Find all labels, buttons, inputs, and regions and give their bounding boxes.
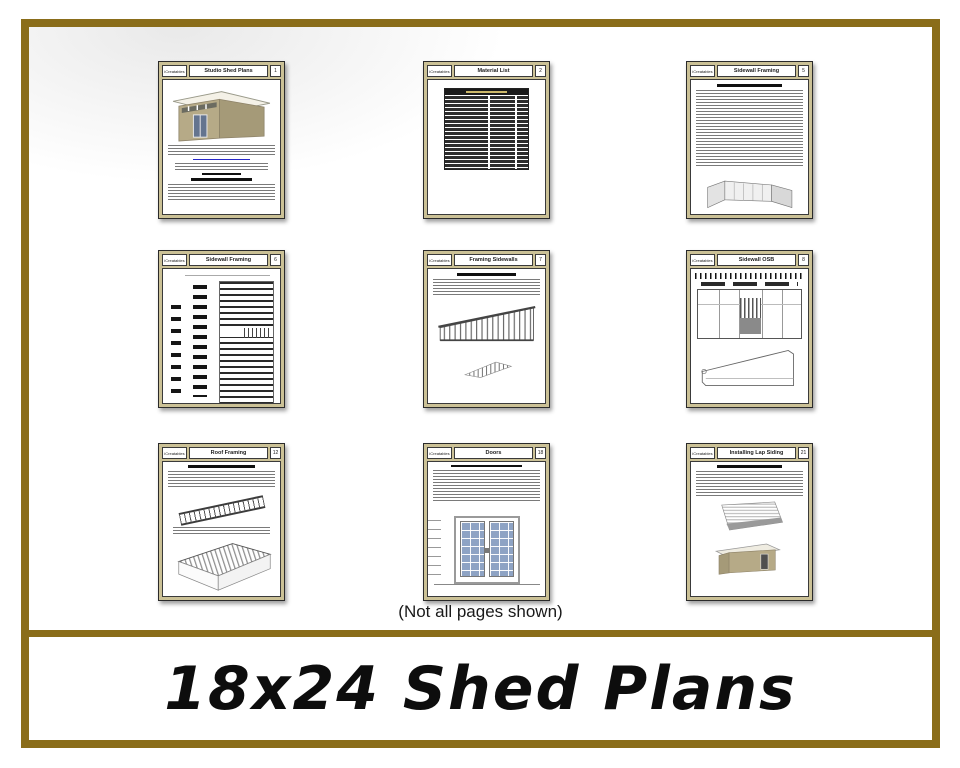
page-header: iCreatables Studio Shed Plans 1 [162,65,281,77]
page-number: 1 [270,65,281,77]
materials-table [444,88,529,170]
page-thumb-framing-diagrams: iCreatables Sidewall Framing 6 [158,250,285,408]
title-band: 18x24 Shed Plans [29,637,932,740]
page-title: Roof Framing [189,447,268,459]
heading-line [457,273,516,276]
heading-line [451,465,521,467]
dashed-blocking-row [701,282,798,286]
text-placeholder [168,145,275,157]
brand-logo: iCreatables [427,65,452,77]
text-placeholder [433,279,540,297]
stud-layout-column [193,285,207,397]
link-line [193,159,249,160]
stud-layout-column [171,305,181,397]
page-number: 2 [535,65,546,77]
side-elevation-outline [697,343,802,393]
panel-divider [782,290,783,338]
page-thumb-wall-framing-text: iCreatables Sidewall Framing 5 [686,61,813,219]
page-title: Sidewall Framing [717,65,796,77]
brand-logo: iCreatables [427,447,452,459]
text-placeholder [696,471,803,497]
door-leaf-right [489,521,514,577]
page-header: iCreatables Doors 18 [427,447,546,459]
page-thumb-cover: iCreatables Studio Shed Plans 1 [158,61,285,219]
door-leaf-left [460,521,485,577]
page-body [690,268,809,404]
page-number: 5 [798,65,809,77]
shed-3d-illustration [163,80,280,142]
page-body [427,268,546,404]
page-thumb-roof-framing: iCreatables Roof Framing 12 [158,443,285,601]
page-header: iCreatables Sidewall Framing 5 [690,65,809,77]
heading-line [188,465,256,468]
page-number: 21 [798,447,809,459]
diagram-stripes [244,328,272,338]
page-header: iCreatables Sidewall Framing 6 [162,254,281,266]
rafter-tick-row [695,273,804,279]
door-handle [484,548,490,553]
pages-grid: iCreatables Studio Shed Plans 1 [29,27,932,630]
text-placeholder [175,163,268,170]
page-body [162,268,281,404]
page-number: 8 [798,254,809,266]
table-header-text-line [466,91,508,93]
brand-logo: iCreatables [162,447,187,459]
page-body [427,461,546,597]
page-title: Doors [454,447,533,459]
page-header: iCreatables Material List 2 [427,65,546,77]
brand-logo: iCreatables [427,254,452,266]
heading-line [202,173,242,175]
page-header: iCreatables Installing Lap Siding 21 [690,447,809,459]
wall-panel-elevation [697,289,802,339]
page-title: Material List [454,65,533,77]
brand-logo: iCreatables [690,254,715,266]
wall-framing-3d [703,172,797,212]
text-placeholder [696,90,803,168]
page-header: iCreatables Roof Framing 12 [162,447,281,459]
dimension-line [185,275,270,276]
text-placeholder [168,471,275,489]
text-placeholder [168,184,275,200]
shed-3d-small [706,535,793,579]
outer-gold-frame: iCreatables Studio Shed Plans 1 [21,19,940,748]
page-thumb-sidewall-osb: iCreatables Sidewall OSB 8 [686,250,813,408]
page-body [162,79,281,215]
page-thumb-framing-sidewalls: iCreatables Framing Sidewalls 7 [423,250,550,408]
window-louver [740,298,761,318]
threshold-line [434,584,540,585]
brand-logo: iCreatables [162,65,187,77]
page-body [690,79,809,215]
page-thumb-doors: iCreatables Doors 18 [423,443,550,601]
page-number: 12 [270,447,281,459]
page-number: 6 [270,254,281,266]
text-placeholder [433,470,540,502]
beam-ladder-illustration [179,495,266,526]
door-opening [740,318,761,334]
text-placeholder [173,527,270,535]
table-column-divider [515,96,517,169]
brand-logo: iCreatables [162,254,187,266]
brand-logo: iCreatables [690,65,715,77]
page-header: iCreatables Sidewall OSB 8 [690,254,809,266]
heading-line [717,465,783,468]
gold-divider [29,630,932,637]
panel-divider [719,290,720,338]
page-body [162,461,281,597]
page-number: 18 [535,447,546,459]
page-body [427,79,546,215]
roof-framing-3d [168,537,276,595]
table-rows [445,96,528,169]
page-title: Sidewall Framing [189,254,268,266]
heading-line [717,84,781,87]
page-title: Sidewall OSB [717,254,796,266]
page-thumb-lap-siding: iCreatables Installing Lap Siding 21 [686,443,813,601]
slanted-wall-framing-diagram [433,299,541,351]
framing-detail-3d [444,354,528,380]
page-body [690,461,809,597]
table-column-divider [488,96,490,169]
dimension-ticks [428,520,441,576]
page-title: Studio Shed Plans [189,65,268,77]
brand-logo: iCreatables [690,447,715,459]
panel-divider [762,290,763,338]
page-number: 7 [535,254,546,266]
table-header [445,89,528,95]
wall-elevation-diagram [219,281,274,404]
not-all-pages-note: (Not all pages shown) [29,602,932,622]
double-doors-illustration [454,516,520,584]
heading-line [191,178,252,181]
page-title: Installing Lap Siding [717,447,796,459]
siding-detail-3d [703,499,797,533]
product-title: 18x24 Shed Plans [164,654,797,724]
page-thumb-material-list: iCreatables Material List 2 [423,61,550,219]
page-title: Framing Sidewalls [454,254,533,266]
page-header: iCreatables Framing Sidewalls 7 [427,254,546,266]
